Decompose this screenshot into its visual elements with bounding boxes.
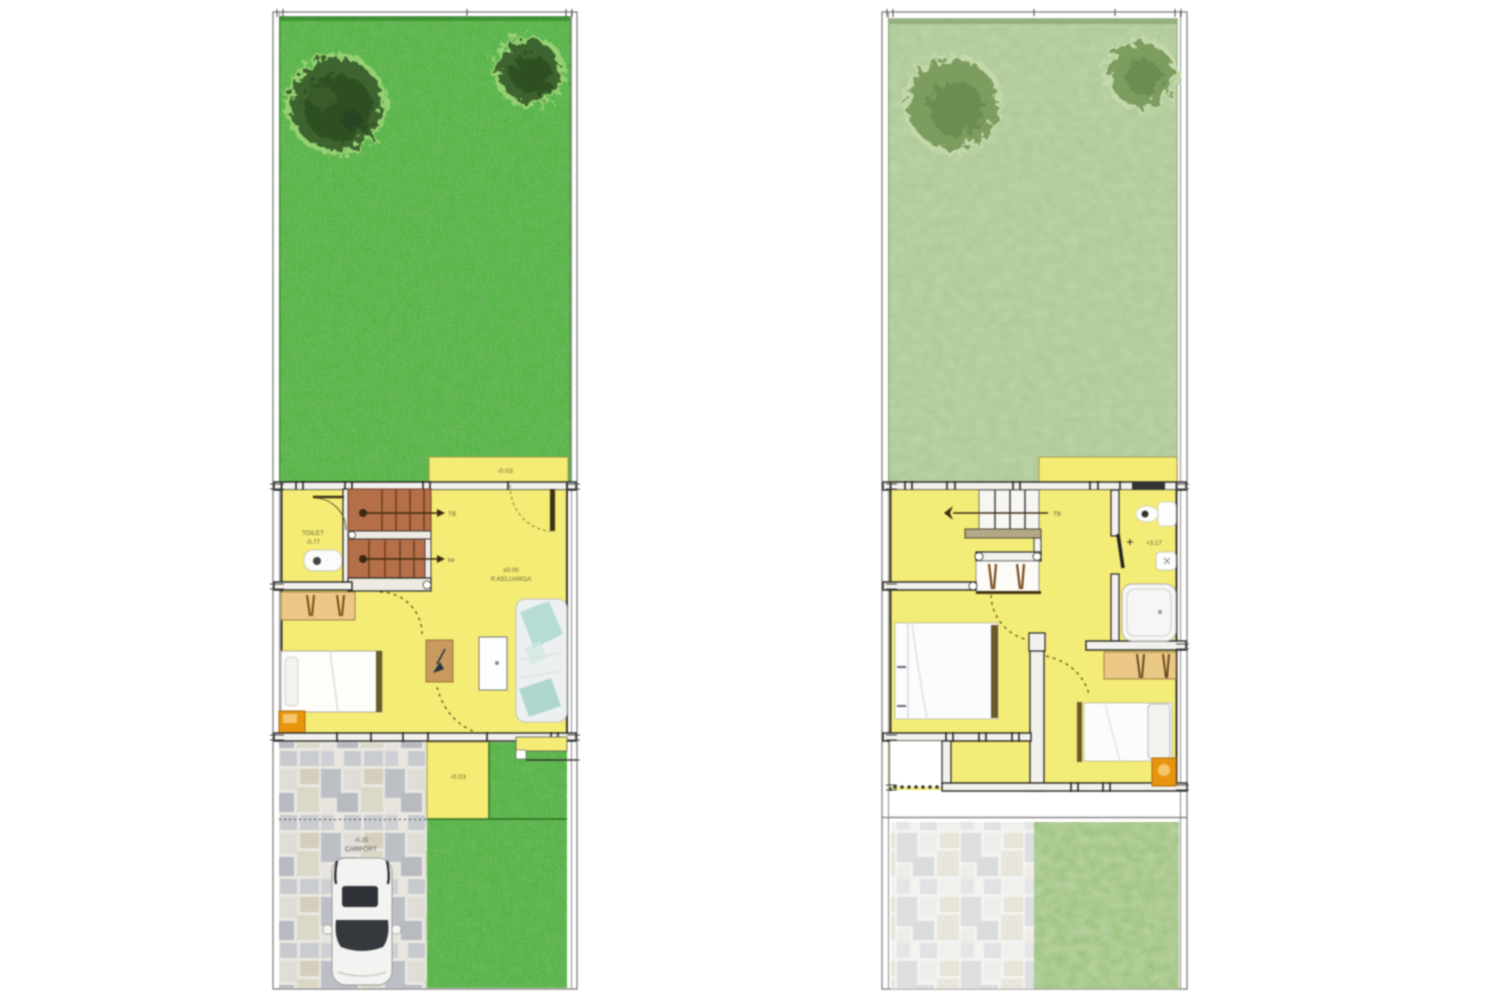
- svg-text:-0.20: -0.20: [354, 837, 369, 844]
- svg-text:TOILET: TOILET: [302, 530, 324, 537]
- svg-text:TB: TB: [1053, 511, 1061, 518]
- svg-text:-0.03: -0.03: [450, 774, 466, 781]
- svg-text:R.KELUARGA: R.KELUARGA: [491, 576, 532, 583]
- svg-text:TB: TB: [448, 511, 456, 518]
- svg-text:ke: ke: [448, 557, 455, 564]
- svg-text:+3.17: +3.17: [1146, 540, 1162, 547]
- svg-text:-0.03: -0.03: [497, 468, 513, 475]
- svg-text:±0.00: ±0.00: [503, 567, 519, 574]
- svg-text:-0.77: -0.77: [306, 539, 321, 546]
- svg-text:CARPORT: CARPORT: [345, 846, 377, 853]
